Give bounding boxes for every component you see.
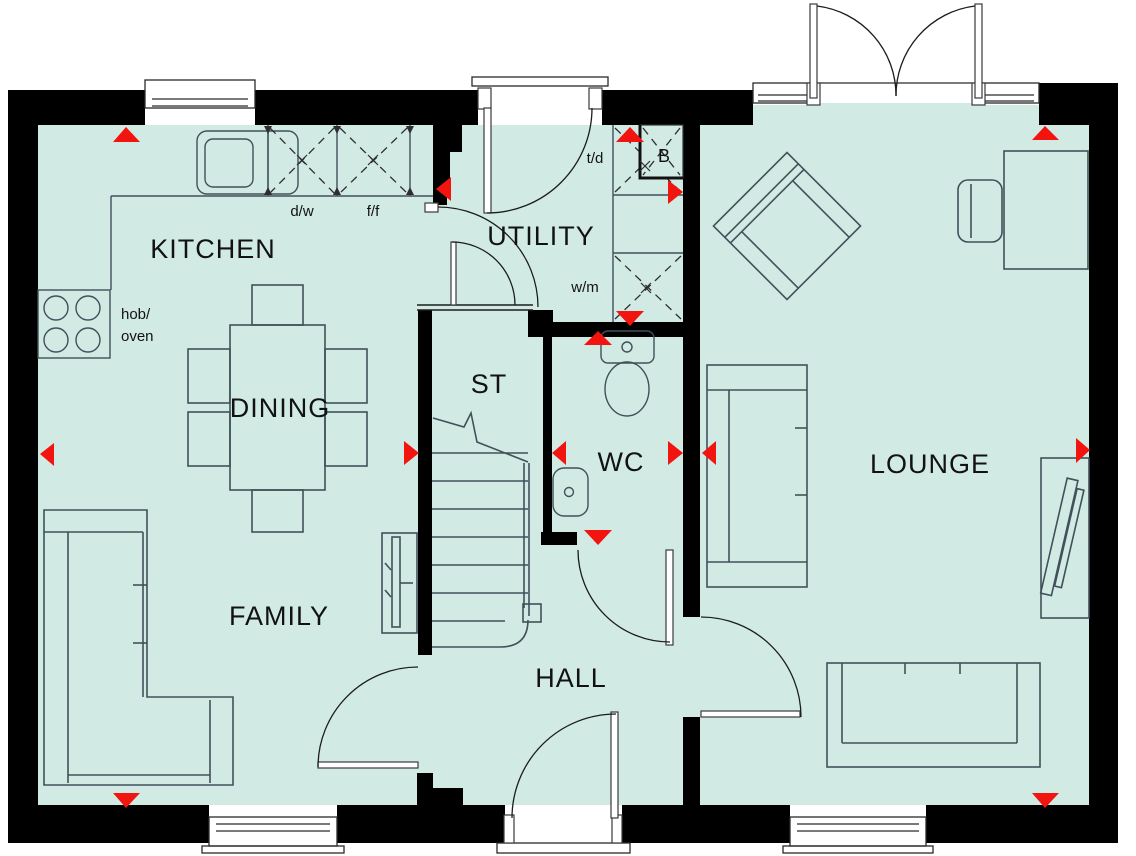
utility-label: UTILITY: [487, 221, 595, 251]
wc-label: WC: [598, 447, 645, 477]
dishwasher-label: d/w: [290, 203, 314, 220]
wall-wc-bottom-stub: [541, 532, 577, 545]
door-jamb: [504, 815, 514, 843]
wall-left: [8, 90, 38, 843]
lounge-window: [783, 805, 933, 853]
door-leaf: [318, 762, 418, 768]
wall-bottom-a: [8, 805, 209, 843]
dining-label: DINING: [230, 393, 331, 423]
wall-bottom-c: [622, 805, 790, 843]
wall-stairs-left: [418, 310, 432, 655]
family-label: FAMILY: [229, 601, 329, 631]
boiler-label: B: [658, 146, 670, 166]
wall-right: [1089, 83, 1118, 843]
kitchen-window: [145, 80, 255, 125]
hob-oven-label-line2: oven: [121, 328, 154, 345]
wall-top-d: [1039, 83, 1089, 125]
door-leaf: [666, 550, 673, 645]
wall-top-c: [602, 90, 753, 125]
wall-wc-left: [543, 337, 552, 532]
store-label: ST: [471, 369, 508, 399]
fridge-freezer-label: f/f: [367, 203, 380, 220]
kitchen-label: KITCHEN: [150, 234, 276, 264]
hob-oven-label-line1: hob/: [121, 306, 151, 323]
door-opening: [505, 805, 622, 843]
lounge-label: LOUNGE: [870, 449, 990, 479]
french-doors: [807, 4, 985, 105]
hall-label: HALL: [535, 663, 607, 693]
floorplan-page: d/w f/f hob/ oven t/d w/m B: [0, 0, 1136, 856]
door-leaf: [975, 4, 982, 98]
window-opening: [790, 805, 926, 846]
window-opening: [753, 83, 812, 105]
door-leaf: [701, 711, 800, 717]
door-jamb: [478, 88, 491, 109]
floor-french-door-strip: [753, 103, 1039, 127]
french-door-right-window: [979, 83, 1039, 105]
washing-machine-label: w/m: [570, 279, 599, 296]
wall-bottom-b: [337, 805, 505, 843]
door-opening: [478, 84, 602, 125]
door-leaf: [451, 242, 456, 305]
door-leaf: [810, 4, 817, 98]
window-sill: [202, 846, 344, 853]
door-jamb: [589, 88, 602, 109]
floorplan-drawing: d/w f/f hob/ oven t/d w/m B: [0, 0, 1136, 856]
wall-top-a: [8, 90, 145, 125]
french-door-left-window: [753, 83, 812, 105]
door-jamb-cap: [425, 203, 438, 212]
wall-lounge-divider-stub: [683, 717, 700, 805]
tumble-dryer-label: t/d: [587, 150, 604, 167]
kitchen-window-opening: [145, 80, 255, 125]
wall-kitchen-step-2: [433, 152, 450, 180]
wall-utility-bottom: [537, 322, 683, 337]
door-jamb: [612, 815, 622, 843]
window-opening: [979, 83, 1039, 105]
wall-lounge-divider: [683, 90, 700, 617]
window-sill: [783, 846, 933, 853]
wall-kitchen-step-1: [433, 125, 462, 152]
family-window: [202, 805, 344, 853]
door-step: [497, 843, 630, 853]
door-leaf: [611, 712, 618, 818]
window-opening: [209, 805, 337, 846]
wall-family-stub-b: [417, 788, 463, 805]
wall-bottom-d: [926, 805, 1118, 843]
wall-top-b: [255, 90, 478, 125]
door-leaf: [484, 108, 491, 213]
